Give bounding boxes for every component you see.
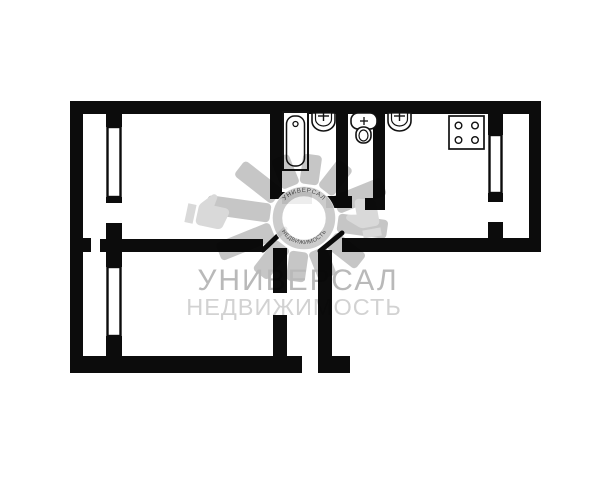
watermark-badge: УНИВЕРСАЛ НЕДВИЖИМОСТЬ xyxy=(0,0,600,497)
floor-plan-image: УНИВЕРСАЛ НЕДВИЖИМОСТЬ УНИВЕРСАЛ НЕДВИЖИ… xyxy=(0,0,600,497)
